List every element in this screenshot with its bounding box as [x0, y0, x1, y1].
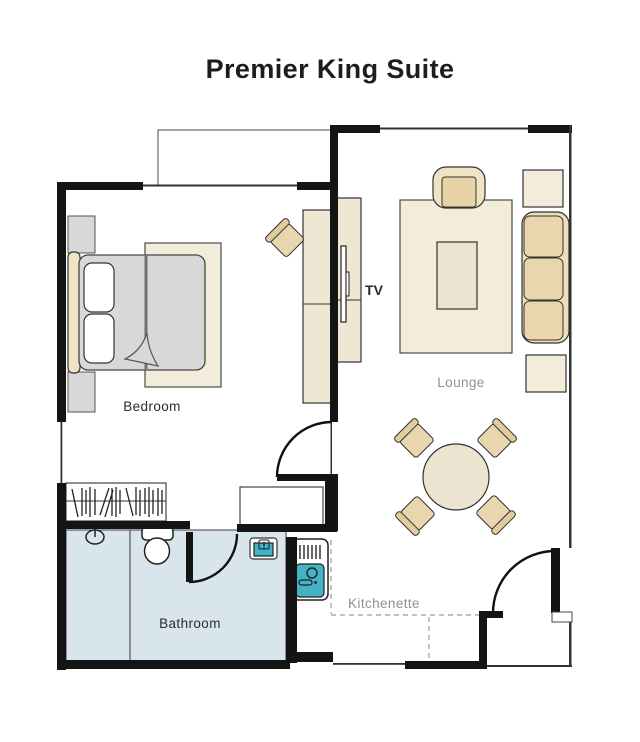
kitchen-sink-icon: [296, 564, 324, 597]
coffee-table: [437, 242, 477, 309]
desk-chair: [264, 217, 306, 259]
bathroom-label: Bathroom: [159, 616, 221, 631]
side-table-bottom: [526, 355, 566, 392]
sofa: [522, 212, 569, 343]
floor-plan-drawing: Bedroom Lounge Bathroom Kitchenette TV: [0, 0, 640, 742]
pillow-top: [84, 263, 114, 312]
floor-plan: Premier King Suite: [0, 0, 640, 742]
bedroom-furniture: [68, 210, 331, 412]
lounge-label: Lounge: [437, 375, 484, 390]
dining-chair-ne: [475, 417, 517, 459]
dining-chair-sw: [394, 494, 436, 536]
closet: [66, 483, 166, 521]
hall-console: [240, 487, 323, 525]
kitchenette-label: Kitchenette: [348, 596, 420, 611]
nightstand-bottom: [68, 372, 95, 412]
nightstand-top: [68, 216, 95, 253]
bedroom-label: Bedroom: [123, 399, 181, 414]
armchair: [433, 167, 485, 208]
bay-window-outline: [158, 130, 333, 185]
bedroom-door: [277, 422, 338, 481]
desk: [303, 210, 331, 403]
dining-chair-nw: [393, 417, 435, 459]
lounge-furniture: [337, 167, 569, 537]
bed-headboard: [68, 252, 80, 373]
side-table-top: [523, 170, 563, 207]
bathroom-sink-icon: [250, 538, 277, 559]
pillow-bottom: [84, 314, 114, 363]
tv-label: TV: [365, 282, 384, 298]
entry-door: [493, 548, 572, 622]
dining-table: [423, 444, 489, 510]
